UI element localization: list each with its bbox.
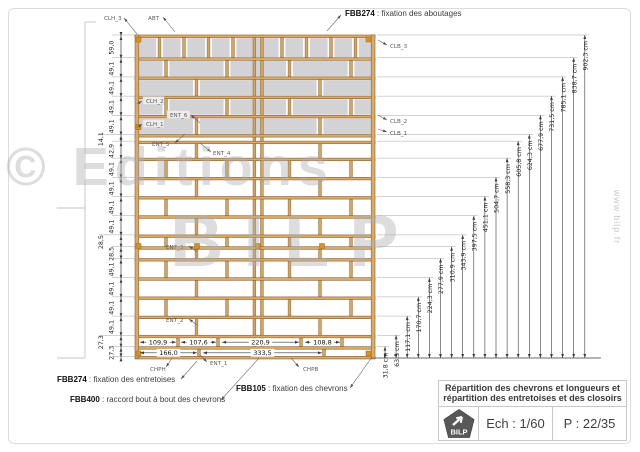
right-dim-label: 605,8 cm: [516, 147, 523, 177]
left-dim-label: 49,1: [109, 320, 116, 334]
right-dim-label: 785,1 cm: [560, 83, 567, 113]
part-label-clb_1: CLB_1: [390, 131, 408, 137]
left-dim-label: 49,1: [109, 220, 116, 234]
part-label-clh_3: CLH_3: [104, 16, 122, 22]
left-dim-label: 49,1: [109, 81, 116, 95]
part-label-chpb: CHPB: [303, 367, 318, 373]
note-fixation-entretoises: FBB274 : fixation des entretoises: [57, 375, 175, 384]
right-dim-label: 451,1 cm: [483, 203, 490, 233]
part-label-clh_2: CLH_2: [146, 99, 164, 105]
bottom-dim-label: 166,0: [159, 349, 178, 357]
note-desc: : fixation des chevrons: [266, 384, 348, 393]
right-dim-label: 343,9 cm: [460, 241, 467, 271]
note-raccord-chevrons: FBB400 : raccord bout à bout des chevron…: [70, 395, 225, 404]
note-code: FBB274: [57, 375, 87, 384]
left-dim-label: 49,1: [109, 181, 116, 195]
bottom-dim-label: 333,5: [253, 349, 272, 357]
right-dim-label: 838,7 cm: [571, 64, 578, 94]
svg-text:BILP: BILP: [450, 428, 467, 437]
part-label-ent_3: ENT_3: [166, 245, 184, 251]
part-label-ent_4: ENT_4: [213, 151, 231, 157]
right-dim-label: 170,7 cm: [416, 303, 423, 333]
reference-bracket: [57, 22, 96, 358]
drawing-title-line2: répartition des entretoises et des closo…: [439, 393, 626, 403]
right-dim-label: 63,5 cm: [394, 341, 401, 367]
right-dim-label: 558,3 cm: [505, 164, 512, 194]
scale-value: Ech : 1/60: [479, 407, 553, 440]
left-dimension-chain: 59,049,149,149,149,114,142,949,149,149,1…: [98, 32, 135, 361]
right-dim-label: 310,9 cm: [449, 253, 456, 283]
left-dim-label: 14,1: [98, 132, 105, 146]
left-dim-label: 49,1: [109, 119, 116, 133]
right-dim-label: 224,3 cm: [427, 284, 434, 314]
note-desc: : raccord bout à bout des chevrons: [100, 395, 225, 404]
right-dim-label: 504,7 cm: [494, 183, 501, 213]
right-dim-label: 397,5 cm: [472, 222, 479, 252]
note-code: FBB274: [345, 9, 375, 18]
left-dim-label: 49,1: [109, 162, 116, 176]
note-desc: : fixation des aboutages: [375, 9, 462, 18]
left-dim-label: 28,5: [98, 235, 105, 249]
drawing-page: 59,049,149,149,149,114,142,949,149,149,1…: [0, 0, 640, 452]
bottom-dim-label: 108,8: [313, 339, 332, 347]
left-dim-label: 42,9: [109, 144, 116, 158]
right-dimension-fan: 31,8 cm63,5 cm117,1 cm170,7 cm224,3 cm27…: [375, 35, 601, 378]
title-block-info-row: BILP Ech : 1/60 P : 22/35: [438, 407, 627, 441]
left-dim-label: 49,1: [109, 100, 116, 114]
left-dim-label: 49,1: [109, 262, 116, 276]
left-dim-label: 59,0: [109, 41, 116, 55]
note-desc: : fixation des entretoises: [87, 375, 176, 384]
note-fixation-chevrons: FBB105 : fixation des chevrons: [236, 384, 348, 393]
note-code: FBB105: [236, 384, 266, 393]
note-code: FBB400: [70, 395, 100, 404]
right-dim-label: 731,5 cm: [549, 102, 556, 132]
left-dim-label: 49,1: [109, 62, 116, 76]
bottom-dim-label: 107,6: [189, 339, 208, 347]
part-label-ent_1: ENT_1: [210, 361, 228, 367]
right-dim-label: 117,1 cm: [405, 322, 412, 352]
left-dim-label: 49,1: [109, 301, 116, 315]
right-dim-label: 677,9 cm: [538, 121, 545, 151]
left-dim-label: 28,5: [109, 247, 116, 261]
bottom-dim-label: 220,9: [251, 339, 270, 347]
part-label-abt: ABT: [148, 16, 160, 22]
part-label-ent_2: ENT_2: [166, 318, 184, 324]
right-dim-label: 624,3 cm: [527, 141, 534, 171]
right-dim-label: 902,3 cm: [583, 41, 590, 71]
left-dim-label: 27,3: [98, 335, 105, 349]
drawing-title: Répartition des chevrons et longueurs et…: [438, 380, 627, 407]
part-label-clb_3: CLB_3: [390, 44, 408, 50]
part-label-clh_1: CLH_1: [146, 122, 164, 128]
bottom-dim-label: 109,9: [149, 339, 168, 347]
part-label-clb_2: CLB_2: [390, 119, 407, 125]
left-dim-label: 27,3: [109, 346, 116, 360]
right-dim-label: 31,8 cm: [383, 353, 390, 379]
right-dim-label: 277,9 cm: [438, 265, 445, 295]
left-dim-label: 49,1: [109, 282, 116, 296]
left-dim-label: 49,1: [109, 200, 116, 214]
page-number: P : 22/35: [553, 407, 626, 440]
part-label-ent_5: ENT_5: [152, 142, 170, 148]
title-block: Répartition des chevrons et longueurs et…: [438, 380, 627, 441]
bilp-logo: BILP: [439, 407, 479, 440]
drawing-title-line1: Répartition des chevrons et longueurs et: [439, 383, 626, 393]
bilp-logo-icon: BILP: [443, 409, 475, 438]
part-label-chph: CHPH: [150, 367, 166, 373]
note-fixation-aboutages: FBB274 : fixation des aboutages: [345, 9, 462, 18]
part-label-ent_6: ENT_6: [170, 113, 188, 119]
